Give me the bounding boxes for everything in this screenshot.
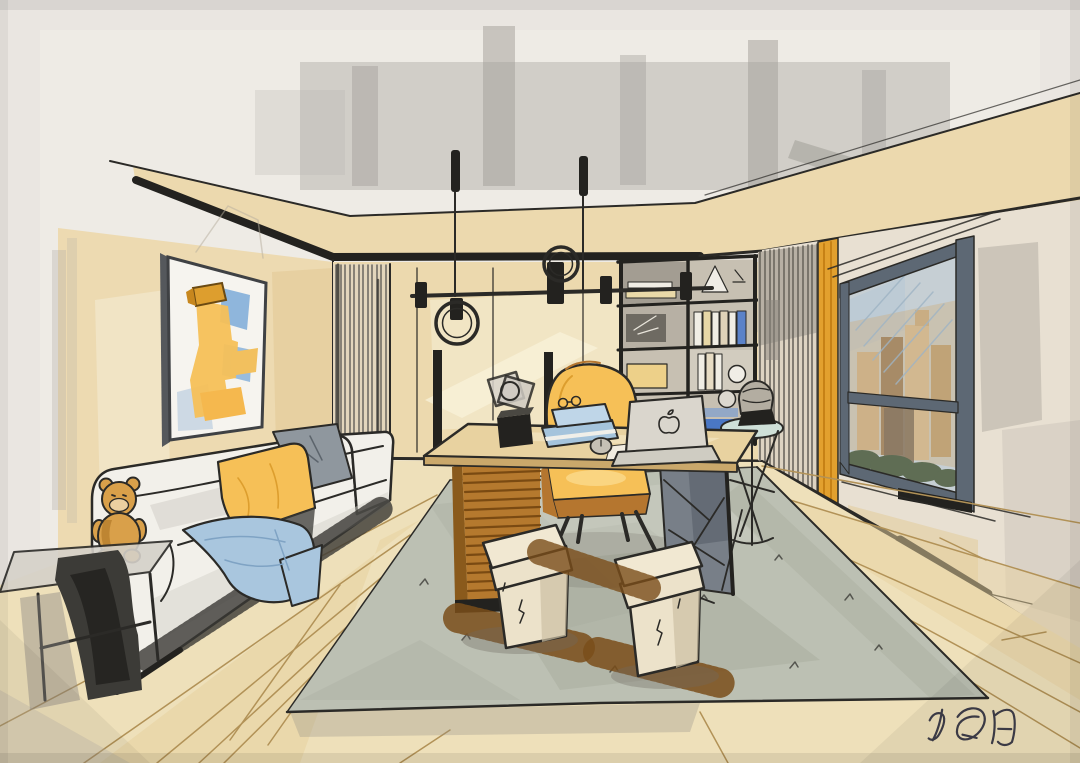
laptop-screen [626,396,708,452]
pendant-rod-cap-left [451,150,460,192]
slat-partition [758,244,820,495]
pendant-rod-cap-right [579,156,588,196]
sketch-canvas [0,0,1080,763]
teddy-muzzle [110,499,129,512]
glass-ball [719,391,736,408]
painting-yellow-block [230,348,258,376]
orange-curtain [818,238,838,512]
sculpture-base [497,414,533,448]
shelf-yellow-box [627,364,667,388]
wall-art-painting [160,253,266,447]
shelf-clock [729,366,746,383]
shelf-vertical-books-row2 [694,311,746,346]
shelf-dark-object [626,314,666,342]
interior-sketch-photo [0,0,1080,763]
wood-slat-panel [333,264,391,455]
